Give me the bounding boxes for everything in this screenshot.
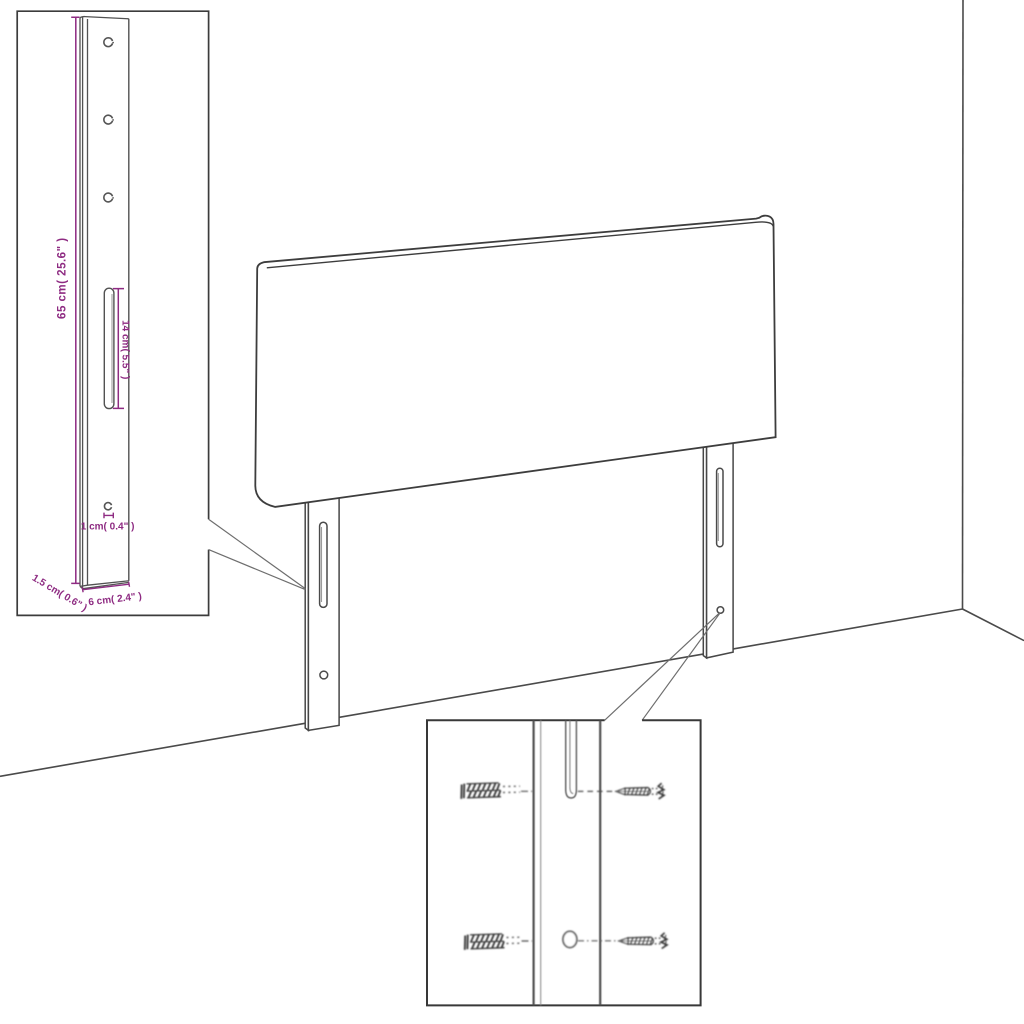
svg-text:14 cm( 5.5" ): 14 cm( 5.5" ) <box>119 320 130 379</box>
svg-text:1 cm( 0.4" ): 1 cm( 0.4" ) <box>81 522 135 533</box>
svg-text:6 cm( 2.4" ): 6 cm( 2.4" ) <box>88 591 143 608</box>
svg-text:65 cm( 25.6" ): 65 cm( 25.6" ) <box>57 237 69 319</box>
